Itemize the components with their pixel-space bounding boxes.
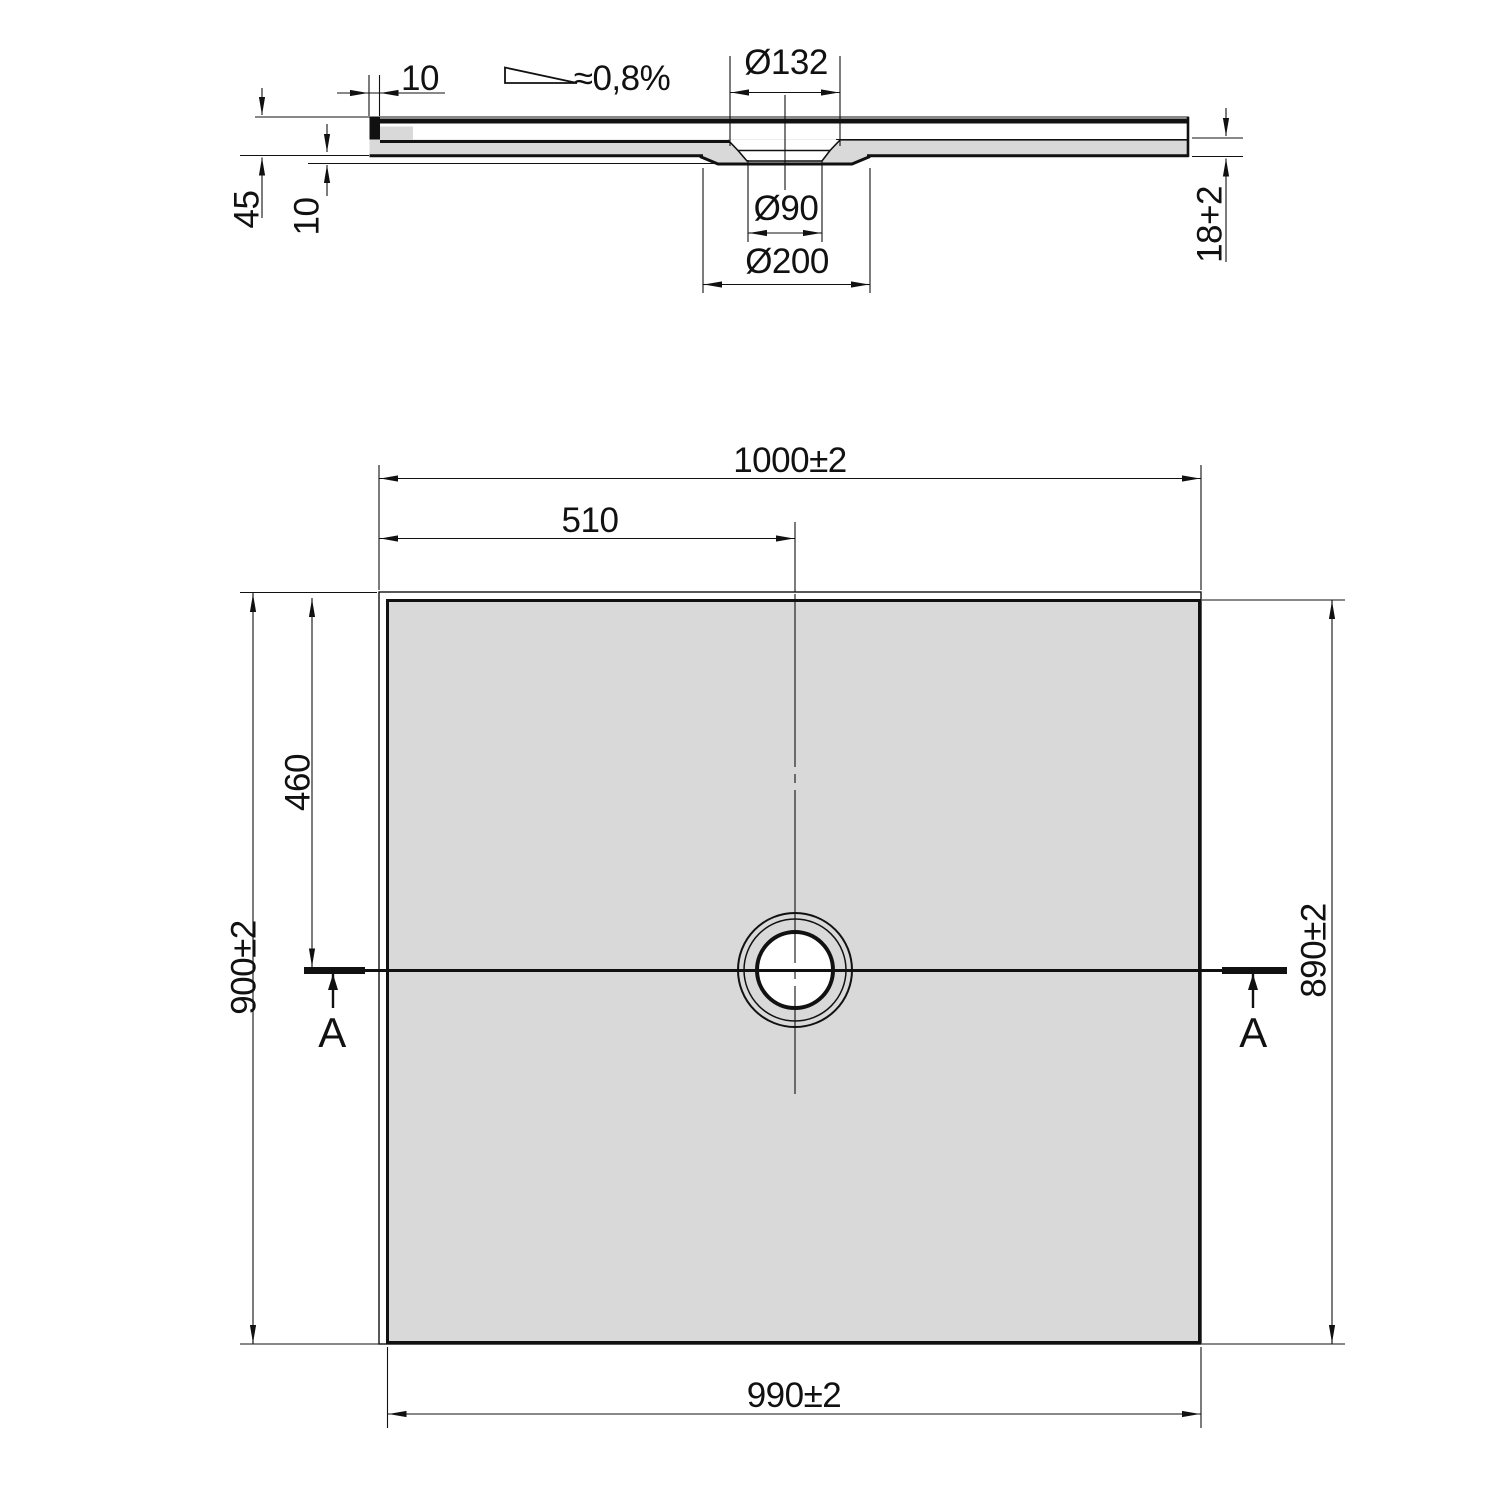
- label-hole-diameter: Ø90: [711, 191, 861, 226]
- plan-view: [304, 522, 1287, 1344]
- section-left-rim-core: [380, 127, 413, 140]
- label-drain-offset-x: 510: [515, 503, 665, 538]
- label-outer-width: 1000±2: [690, 443, 890, 478]
- label-slope: ≈0,8%: [547, 61, 697, 96]
- label-inner-depth: 890±2: [1297, 851, 1332, 1051]
- label-edge-thickness: 18+2: [1193, 150, 1228, 300]
- label-flange-diameter: Ø132: [711, 45, 861, 80]
- label-pocket-depth: 10: [290, 167, 325, 267]
- label-rim-width: 10: [370, 61, 470, 96]
- label-drain-offset-y: 460: [281, 708, 316, 858]
- label-outer-depth: 900±2: [227, 868, 262, 1068]
- section-marker-a-right: A: [1223, 1012, 1283, 1054]
- label-inner-width: 990±2: [694, 1378, 894, 1413]
- technical-drawing-shower-tray: 10 ≈0,8% Ø132 Ø90 Ø200 45 10 18+2 1000±2…: [0, 0, 1500, 1500]
- label-pocket-diameter: Ø200: [712, 244, 862, 279]
- section-marker-a-left: A: [302, 1012, 362, 1054]
- label-total-height: 45: [230, 160, 265, 260]
